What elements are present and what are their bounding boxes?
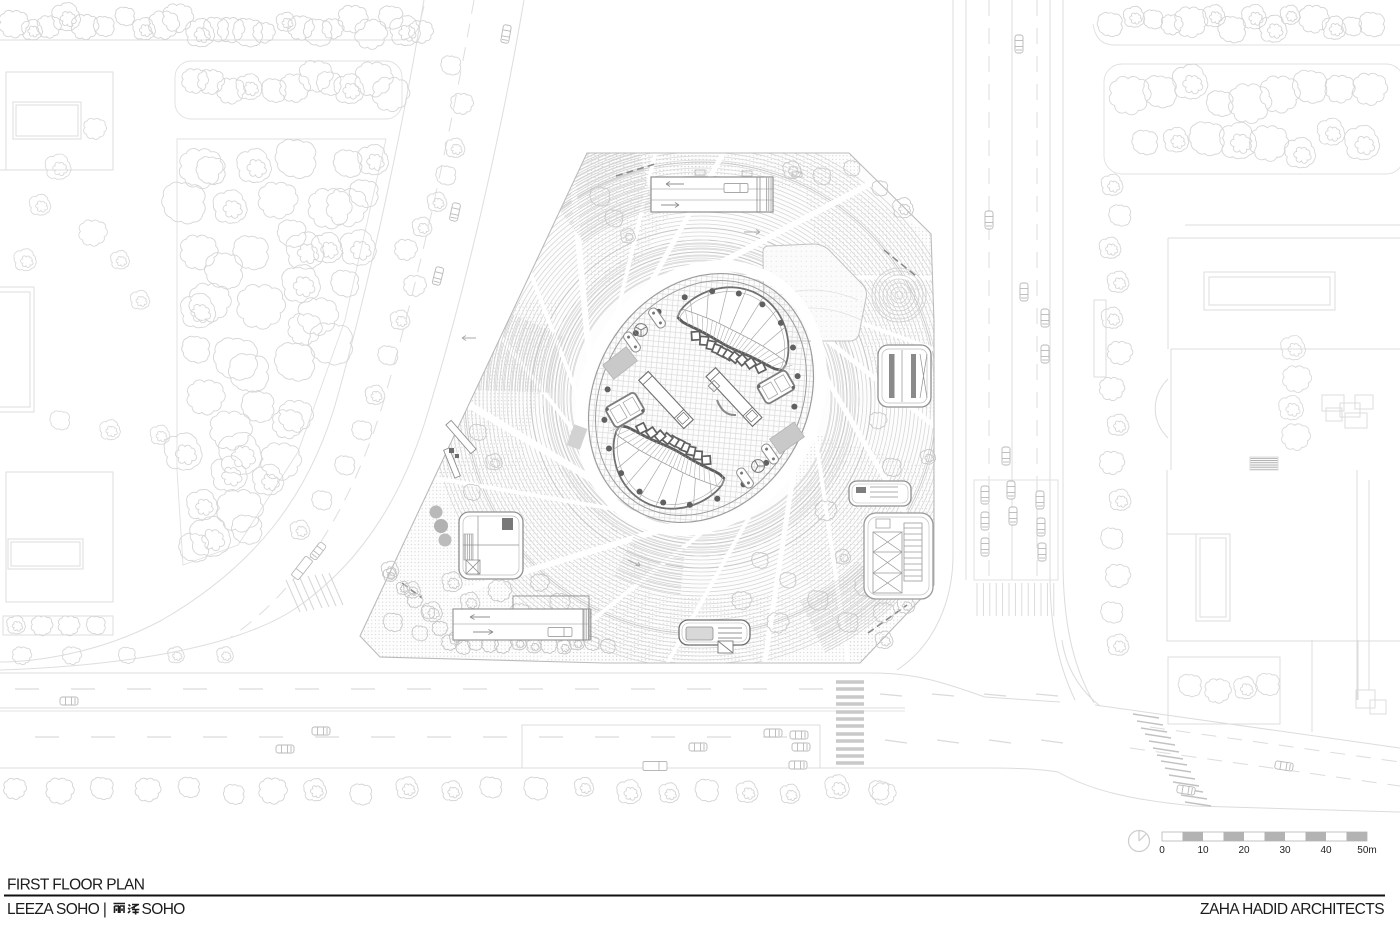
svg-text:20: 20 (1238, 845, 1250, 856)
svg-text:SOHO: SOHO (142, 901, 186, 918)
svg-text:30: 30 (1279, 845, 1291, 856)
svg-text:10: 10 (1197, 845, 1209, 856)
svg-text:40: 40 (1320, 845, 1332, 856)
svg-text:50m: 50m (1357, 845, 1376, 856)
svg-text:FIRST FLOOR PLAN: FIRST FLOOR PLAN (7, 877, 144, 894)
svg-text:LEEZA SOHO |: LEEZA SOHO | (7, 901, 106, 918)
svg-text:0: 0 (1159, 845, 1165, 856)
svg-text:ZAHA HADID ARCHITECTS: ZAHA HADID ARCHITECTS (1200, 901, 1384, 918)
